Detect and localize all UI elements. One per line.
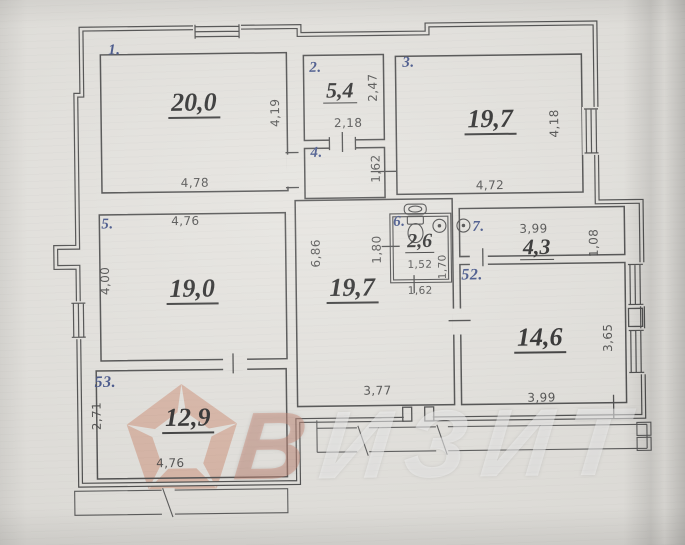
window-right-room3 <box>584 109 599 153</box>
dim-hall-bottom: 3,77 <box>363 384 391 396</box>
dim-room7-right: 1,08 <box>587 229 599 257</box>
room-5-area: 19,0 <box>166 274 218 305</box>
dim-hall-left: 6,86 <box>310 239 322 267</box>
pentagon-logo <box>102 371 255 523</box>
dim-room3-right: 4,18 <box>548 109 560 137</box>
hall-area: 19,7 <box>326 273 378 304</box>
dim-room53-left: 2,71 <box>91 402 103 430</box>
room-6-number: 6. <box>393 215 405 230</box>
dim-room52-right: 3,65 <box>602 324 614 352</box>
room-53-area: 12,9 <box>162 403 214 434</box>
dim-room5-left: 4,00 <box>99 267 111 295</box>
dim-room3-bottom: 4,72 <box>476 179 504 191</box>
dim-room6-bottom: 1,52 <box>407 260 432 271</box>
room-7-number: 7. <box>472 220 484 235</box>
room-2-number: 2. <box>309 61 321 76</box>
dim-room52-bottom: 3,99 <box>527 391 555 403</box>
balcony-bottom-left <box>75 489 288 516</box>
dim-room6-left: 1,80 <box>371 235 383 263</box>
room-4-number: 4. <box>310 146 322 161</box>
balcony-break-marks <box>161 425 449 517</box>
window-left-room5 <box>71 303 85 337</box>
dim-room1-bottom: 4,78 <box>181 177 209 189</box>
dim-room2-right: 2,47 <box>367 73 379 101</box>
room-1-area: 20,0 <box>168 88 220 119</box>
dim-room7-top: 3,99 <box>519 222 547 234</box>
sink-icon <box>404 204 426 214</box>
dim-room4-right: 1,62 <box>370 154 382 182</box>
dim-room5-top: 4,76 <box>171 215 199 227</box>
door-marks <box>220 129 614 425</box>
floor-plan-photo: ВИЗИТ 1. 2. 3. 4. 5. 6. 7. 52. 53. 20,0 … <box>0 0 685 545</box>
window-top <box>195 24 239 39</box>
dim-room6-right: 1,70 <box>438 254 449 279</box>
room-6-area: 2,6 <box>405 231 434 253</box>
room-7-area: 4,3 <box>520 235 554 261</box>
room-1-outline <box>100 53 288 193</box>
dim-room53-bottom: 4,76 <box>156 457 184 469</box>
dim-room6-below: 1,62 <box>408 286 433 297</box>
dim-room1-right: 4,19 <box>269 99 281 127</box>
room-1-number: 1. <box>108 43 120 58</box>
toilet-icon <box>407 216 423 224</box>
room-52-number: 52. <box>461 267 483 283</box>
room-3-area: 19,7 <box>464 105 516 136</box>
room-3-number: 3. <box>402 56 414 71</box>
room-2-area: 5,4 <box>323 78 357 104</box>
room-52-area: 14,6 <box>514 323 566 354</box>
dim-room2-bottom: 2,18 <box>334 117 362 129</box>
floor-plan: ВИЗИТ 1. 2. 3. 4. 5. 6. 7. 52. 53. 20,0 … <box>0 0 685 545</box>
room-5-number: 5. <box>101 217 113 232</box>
room-53-number: 53. <box>94 375 116 391</box>
